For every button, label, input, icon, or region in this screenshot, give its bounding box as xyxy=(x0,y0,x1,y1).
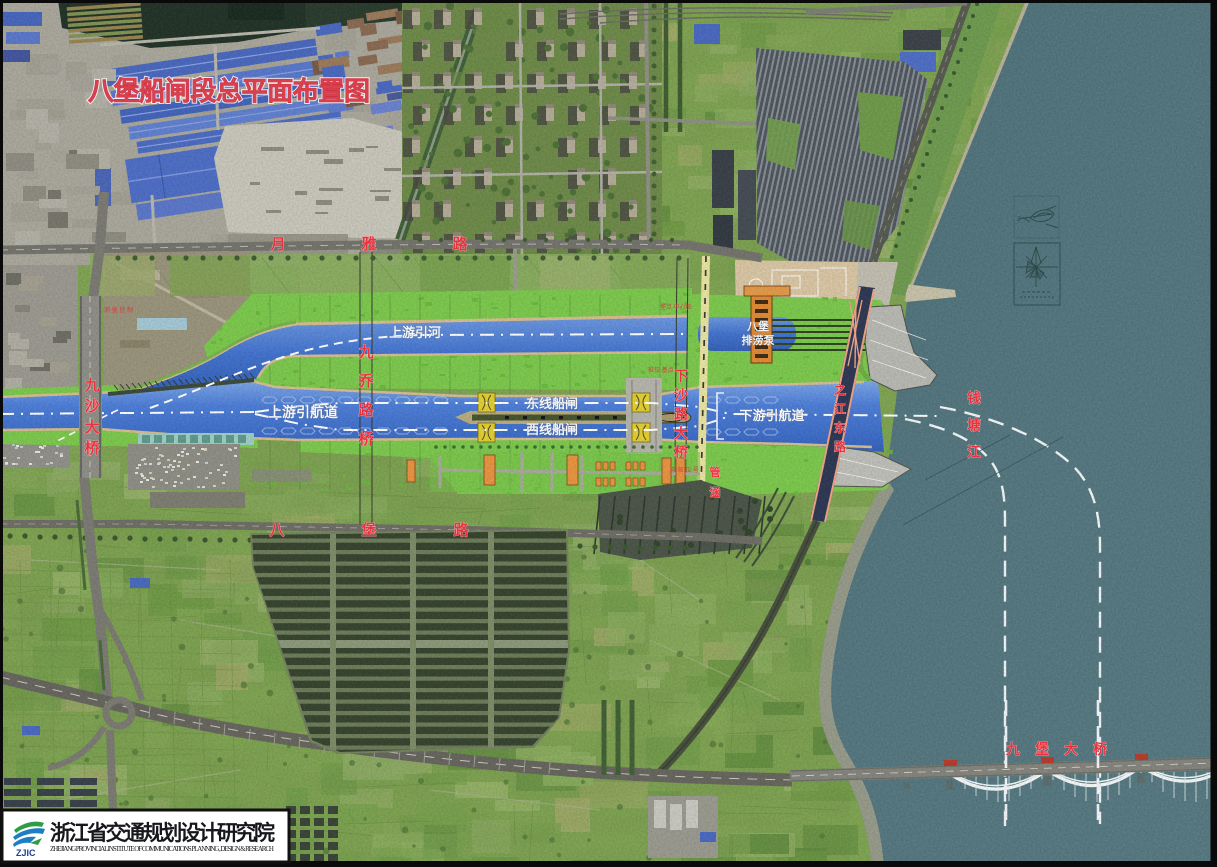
svg-text:ZJIC: ZJIC xyxy=(16,848,36,858)
svg-text:管: 管 xyxy=(710,465,721,479)
svg-text:堡: 堡 xyxy=(1035,741,1049,757)
svg-text:西线船闸: 西线船闸 xyxy=(526,422,578,437)
svg-text:乔: 乔 xyxy=(357,372,374,390)
svg-text:八堡: 八堡 xyxy=(746,319,769,333)
svg-text:钱: 钱 xyxy=(967,390,981,406)
svg-text:江: 江 xyxy=(967,444,981,460)
svg-text:中 桩 位 号: 中 桩 位 号 xyxy=(670,466,699,474)
svg-text:桩位 基点: 桩位 基点 xyxy=(648,366,674,374)
svg-text:江: 江 xyxy=(834,401,846,416)
svg-text:上游引河: 上游引河 xyxy=(389,325,441,340)
svg-text:下: 下 xyxy=(674,368,688,384)
svg-text:东: 东 xyxy=(834,420,846,435)
svg-text:桥: 桥 xyxy=(84,439,100,457)
svg-text:月: 月 xyxy=(269,236,285,253)
svg-text:沙: 沙 xyxy=(84,398,99,415)
svg-text:塘: 塘 xyxy=(967,417,981,433)
svg-text:路: 路 xyxy=(834,439,847,454)
svg-text:大: 大 xyxy=(674,425,688,441)
svg-text:ZHEJIANG PROVINCIAL INSTITUTE: ZHEJIANG PROVINCIAL INSTITUTE OF COMMUNI… xyxy=(50,845,274,853)
svg-text:上游引航道: 上游引航道 xyxy=(268,404,338,420)
svg-text:九: 九 xyxy=(83,376,99,394)
svg-text:桥: 桥 xyxy=(1093,741,1108,757)
svg-text:之: 之 xyxy=(834,382,846,397)
svg-text:堡点 中心桩: 堡点 中心桩 xyxy=(660,303,692,311)
svg-text:大: 大 xyxy=(84,418,99,436)
svg-text:路: 路 xyxy=(674,406,689,422)
svg-text:下游引航道: 下游引航道 xyxy=(739,408,804,423)
svg-text:雅: 雅 xyxy=(360,235,376,253)
svg-text:沙: 沙 xyxy=(674,387,688,403)
svg-text:路: 路 xyxy=(453,521,469,539)
svg-text:浙江省交通规划设计研究院: 浙江省交通规划设计研究院 xyxy=(50,821,275,845)
svg-text:堡: 堡 xyxy=(361,521,376,539)
svg-text:大: 大 xyxy=(1064,741,1078,757)
svg-text:桥: 桥 xyxy=(674,444,689,460)
svg-text:排涝泵: 排涝泵 xyxy=(742,333,775,347)
svg-text:九: 九 xyxy=(357,343,373,361)
svg-text:涵: 涵 xyxy=(710,485,721,499)
svg-text:路: 路 xyxy=(452,235,468,253)
svg-text:路: 路 xyxy=(358,401,374,419)
svg-text:九: 九 xyxy=(1005,741,1020,757)
svg-text:东线船闸: 东线船闸 xyxy=(526,396,578,411)
svg-text:八堡船闸段总平面布置图: 八堡船闸段总平面布置图 xyxy=(88,76,370,106)
svg-text:测 量 控 制: 测 量 控 制 xyxy=(104,306,133,314)
svg-text:八: 八 xyxy=(268,522,285,539)
svg-text:桥: 桥 xyxy=(358,430,374,448)
